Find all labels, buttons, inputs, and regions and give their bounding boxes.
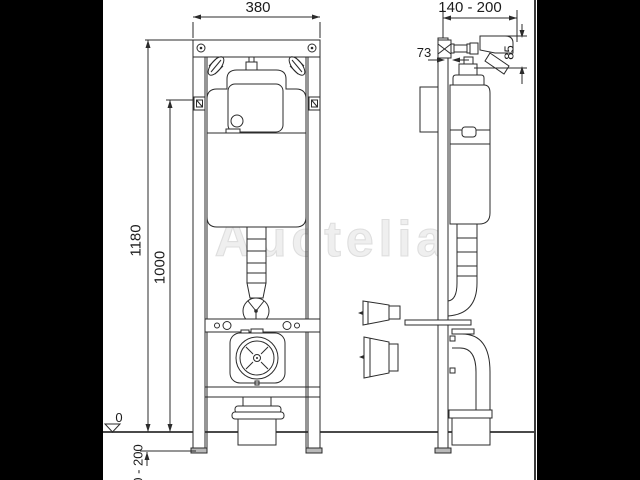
drain-elbow-side — [449, 334, 492, 445]
lower-crossbar — [205, 387, 320, 397]
fill-valve-cap — [246, 57, 257, 70]
side-foot — [435, 448, 451, 453]
video-frame: Auctelia — [0, 0, 640, 480]
floor-level-label: 0 — [112, 411, 126, 424]
drain-socket-front — [232, 397, 284, 445]
outlet-flange — [230, 329, 285, 385]
dim-73-label: 73 — [412, 46, 436, 59]
right-foot — [306, 448, 322, 453]
dim-1180-line — [145, 40, 193, 432]
dim-1180-label: 1180 — [129, 221, 144, 261]
top-crossbar — [193, 40, 320, 57]
dim-85-label: 85 — [503, 38, 516, 68]
connector-sleeves — [358, 301, 400, 378]
side-rail — [438, 38, 448, 448]
foot-range-label: 0 - 200 — [132, 430, 145, 480]
dim-140-200-label: 140 - 200 — [428, 0, 512, 15]
technical-drawing-canvas — [0, 0, 640, 480]
side-view — [358, 36, 513, 453]
dim-0-200-line — [140, 451, 196, 466]
dim-380-line — [193, 15, 320, 39]
dim-380-label: 380 — [234, 0, 282, 15]
flush-pipe-side — [448, 224, 477, 316]
datum-level-icon — [105, 424, 120, 432]
front-view — [191, 40, 322, 453]
flush-pipe-front — [243, 227, 269, 324]
cistern-tank — [207, 129, 306, 227]
cistern-side — [450, 57, 490, 224]
wall-bracket — [420, 87, 438, 132]
access-panel — [207, 70, 306, 133]
shelf-bracket — [405, 320, 471, 325]
inspection-lid — [228, 84, 283, 132]
dim-1000-label: 1000 — [153, 248, 168, 288]
dim-1000-line — [166, 100, 194, 432]
